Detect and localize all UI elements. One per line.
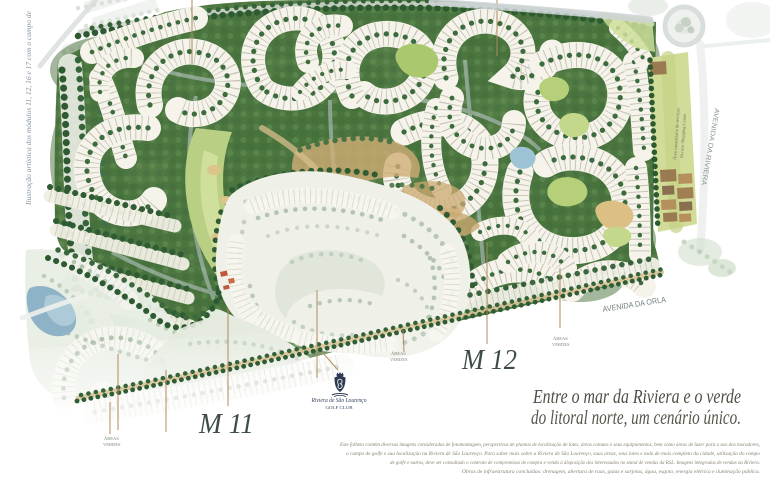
- svg-text:Este folheto contém diversas i: Este folheto contém diversas imagens con…: [339, 441, 760, 448]
- svg-text:M 12: M 12: [461, 344, 517, 376]
- svg-text:de golfe e outros, deve ser co: de golfe e outros, deve ser consultado o…: [390, 459, 760, 466]
- svg-text:ÁREAS: ÁREAS: [391, 351, 406, 356]
- svg-text:M 11: M 11: [198, 408, 254, 440]
- svg-text:VERDES: VERDES: [390, 357, 408, 362]
- svg-text:Entre o mar da Riviera e o ver: Entre o mar da Riviera e o verde: [532, 387, 741, 408]
- svg-text:VERDES: VERDES: [103, 442, 121, 447]
- svg-text:o campo de golfe e sua localiz: o campo de golfe e sua localização na Ri…: [346, 450, 760, 457]
- svg-text:ÁREAS: ÁREAS: [104, 436, 119, 441]
- svg-text:Ilustração artística dos módul: Ilustração artística dos módulos 11, 12,…: [25, 11, 33, 206]
- svg-text:do litoral norte, um cenário ú: do litoral norte, um cenário único.: [531, 408, 741, 429]
- svg-text:Obras de infraestrutura conclu: Obras de infraestrutura concluídas: dren…: [462, 468, 760, 475]
- svg-text:Riviera de São Lourenço: Riviera de São Lourenço: [311, 397, 367, 404]
- svg-text:VERDES: VERDES: [552, 342, 570, 347]
- svg-text:GOLF CLUB: GOLF CLUB: [326, 405, 353, 410]
- svg-text:ÁREAS: ÁREAS: [553, 336, 568, 341]
